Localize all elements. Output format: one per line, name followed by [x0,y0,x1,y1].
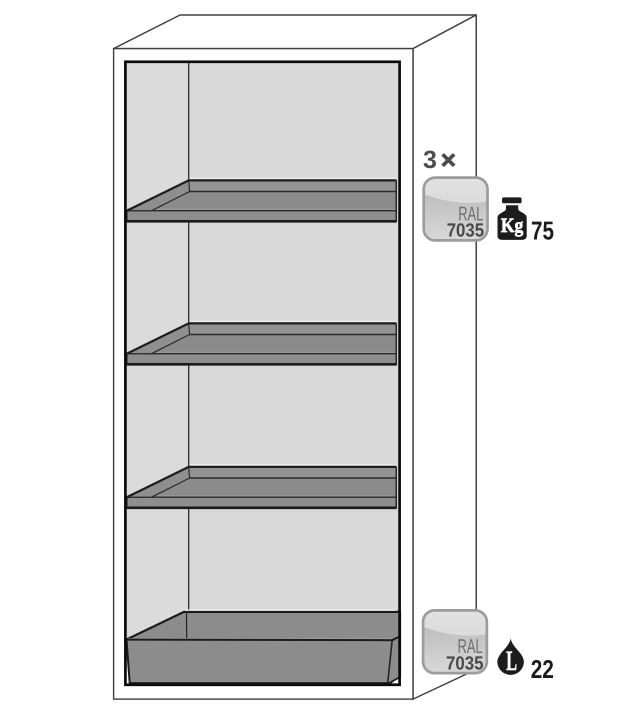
svg-text:7035: 7035 [447,221,485,242]
svg-text:75: 75 [531,215,554,245]
svg-text:22: 22 [531,654,554,684]
svg-text:7035: 7035 [446,653,484,674]
svg-text:3: 3 [423,146,437,174]
svg-text:Kg: Kg [501,215,524,237]
svg-text:L: L [506,646,517,677]
